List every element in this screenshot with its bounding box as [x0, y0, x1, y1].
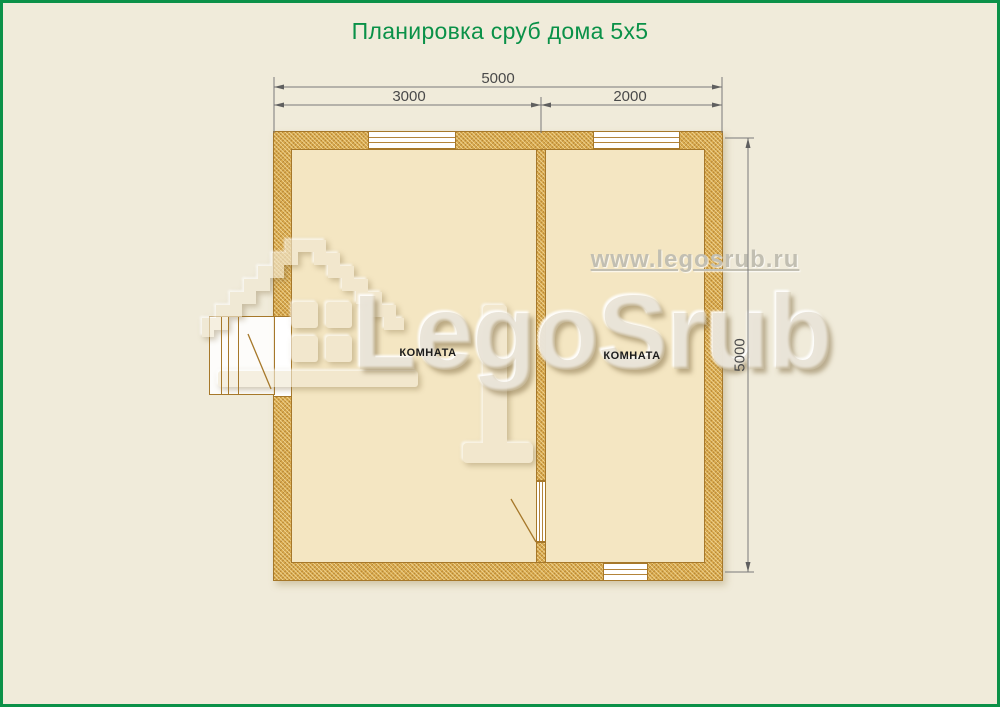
page-title: Планировка сруб дома 5x5 [3, 18, 997, 45]
dimension-height-total: 5000 [732, 338, 749, 371]
partition-wall-upper [536, 149, 546, 481]
dimension-width-right: 2000 [613, 88, 646, 105]
partition-wall-lower [536, 542, 546, 563]
room-label-2: КОМНАТА [603, 350, 660, 362]
page-canvas: Планировка сруб дома 5x5 LegoSrub www.le… [0, 0, 1000, 707]
room-label-1: КОМНАТА [399, 347, 456, 359]
entrance-door-opening [274, 316, 291, 397]
window-top-right [593, 131, 680, 149]
dimension-width-total: 5000 [481, 70, 514, 87]
window-bottom [603, 563, 648, 581]
window-top-left [368, 131, 456, 149]
entrance-porch-steps [209, 316, 275, 395]
dimension-width-left: 3000 [392, 88, 425, 105]
interior-door-frame [536, 481, 546, 542]
